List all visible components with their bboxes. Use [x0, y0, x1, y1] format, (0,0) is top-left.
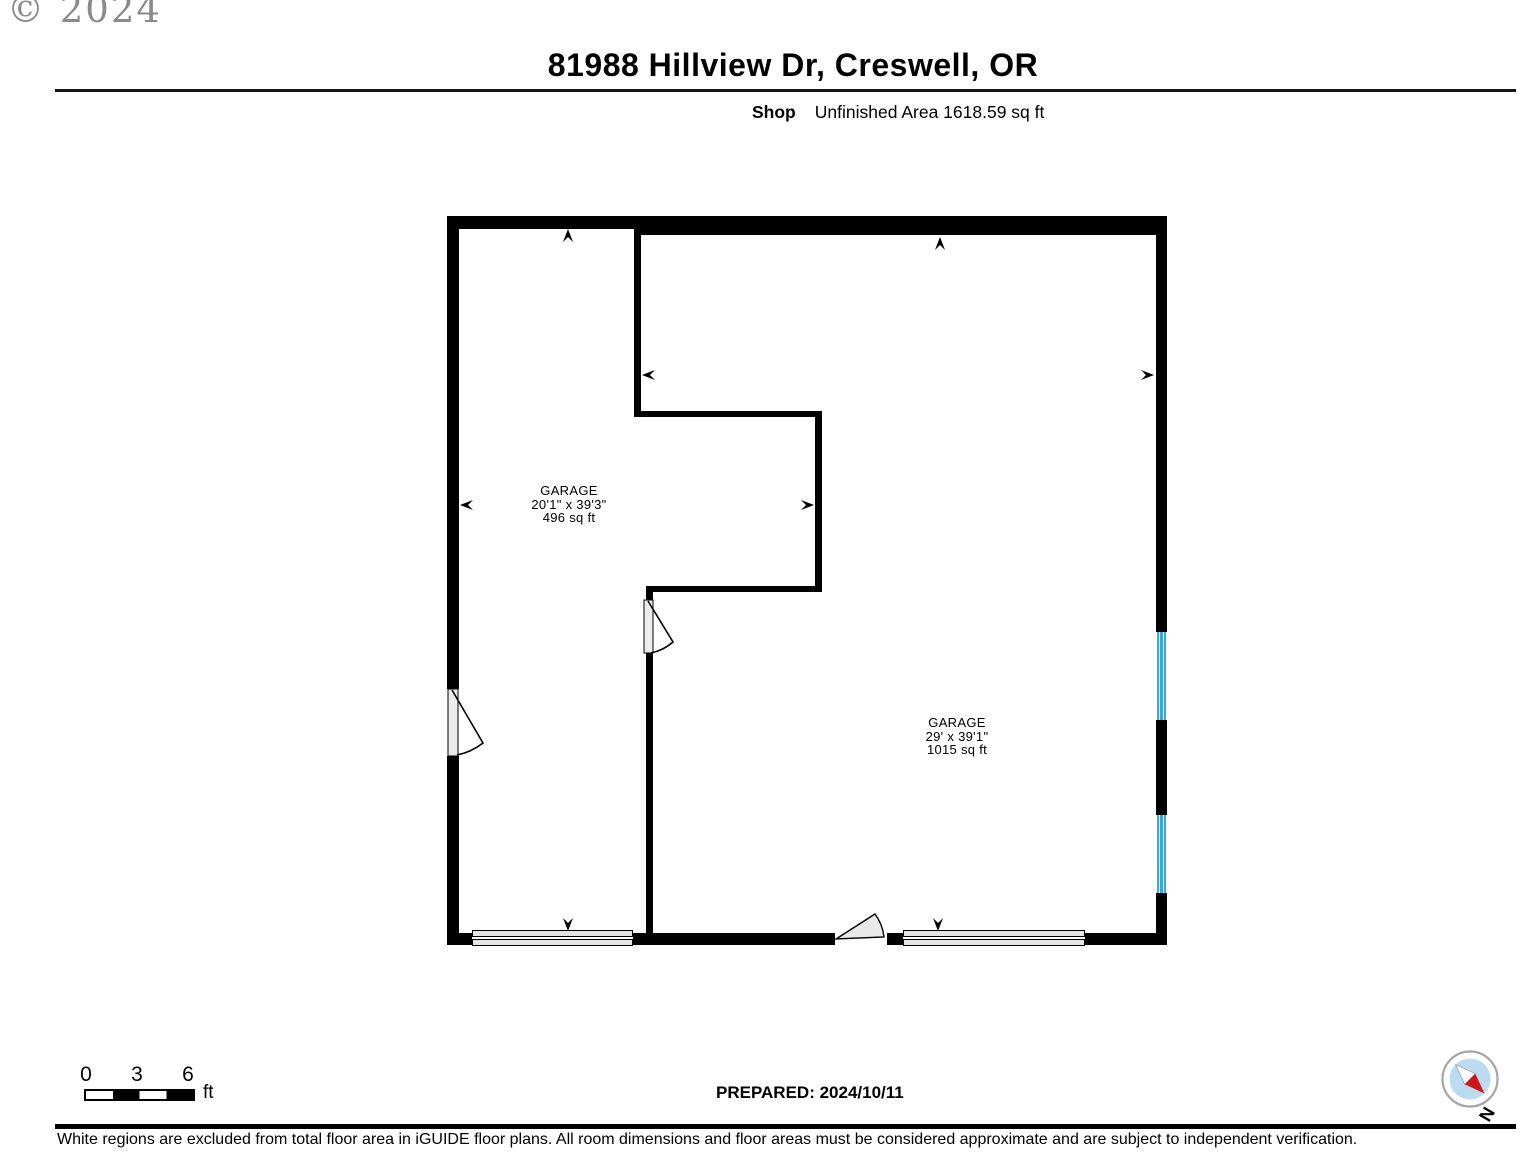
wall-bottom-d [1085, 933, 1167, 945]
compass: N [0, 0, 1536, 1152]
arrow-right-outer-wall [1141, 370, 1154, 380]
header-divider [55, 89, 1516, 92]
scale-unit-label: ft [203, 1082, 214, 1104]
wall-left-lower [447, 756, 459, 945]
garage-door-right [903, 930, 1085, 946]
room-label-garage-left: GARAGE 20'1" x 39'3" 496 sq ft [469, 484, 669, 525]
door-left-wall [448, 689, 483, 756]
room-dimensions: 29' x 39'1" [857, 730, 1057, 744]
plan-symbols [0, 0, 1536, 1152]
wall-right-mid [1156, 720, 1167, 815]
wall-notch-right [815, 411, 822, 592]
room-name: GARAGE [857, 716, 1057, 730]
window-right-lower [1156, 815, 1167, 893]
prepared-date: PREPARED: 2024/10/11 [716, 1083, 904, 1103]
scale-tick-6: 6 [180, 1063, 196, 1087]
room-area: 496 sq ft [469, 511, 669, 525]
floorplan-page: © 2024 81988 Hillview Dr, Creswell, OR S… [0, 0, 1536, 1152]
wall-interior-stub [646, 592, 653, 601]
wall-interior-lower [646, 653, 653, 933]
floor-name-label: Shop [752, 102, 796, 123]
garage-door-left [472, 930, 633, 946]
copyright-watermark: © 2024 [7, 0, 162, 31]
arrow-up-left-garage [563, 229, 573, 242]
scale-tick-0: 0 [78, 1063, 94, 1087]
compass-ring [1443, 1052, 1498, 1107]
wall-right-upper [1156, 216, 1167, 632]
room-dimensions: 20'1" x 39'3" [469, 498, 669, 512]
floor-summary: Shop Unfinished Area 1618.59 sq ft [752, 102, 1044, 123]
door-interior-wall [644, 600, 673, 653]
disclaimer-text: White regions are excluded from total fl… [57, 1131, 1477, 1149]
footer-divider [55, 1124, 1516, 1129]
wall-top-right [638, 216, 1167, 235]
door-bottom-wall [836, 914, 884, 939]
floor-area-label: Unfinished Area 1618.59 sq ft [815, 102, 1045, 123]
wall-top-left [447, 216, 641, 229]
garage-door-panel [472, 939, 633, 946]
wall-left-upper [447, 216, 459, 689]
wall-bottom-b [633, 933, 835, 945]
wall-bottom-c [887, 933, 903, 945]
page-title: 81988 Hillview Dr, Creswell, OR [0, 47, 1536, 84]
window-right-upper [1156, 632, 1167, 720]
wall-bottom-a [447, 933, 472, 945]
compass-face [1450, 1059, 1491, 1100]
wall-notch-top [634, 411, 822, 417]
garage-door-panel [903, 939, 1085, 946]
room-name: GARAGE [469, 484, 669, 498]
scale-tick-3: 3 [129, 1063, 145, 1087]
garage-door-panel [472, 930, 633, 937]
arrow-right-notch-wall [801, 500, 814, 510]
room-area: 1015 sq ft [857, 743, 1057, 757]
room-label-garage-right: GARAGE 29' x 39'1" 1015 sq ft [857, 716, 1057, 757]
compass-needle-white [1456, 1065, 1476, 1085]
arrow-up-right-garage [935, 237, 945, 250]
compass-needle-red [1465, 1074, 1485, 1094]
scale-bar [84, 1089, 195, 1101]
wall-notch-bottom [646, 586, 822, 592]
compass-north-label: N [1475, 1104, 1499, 1125]
arrow-left-interior-wall [642, 370, 655, 380]
wall-interior-upper [634, 229, 641, 412]
garage-door-panel [903, 930, 1085, 937]
